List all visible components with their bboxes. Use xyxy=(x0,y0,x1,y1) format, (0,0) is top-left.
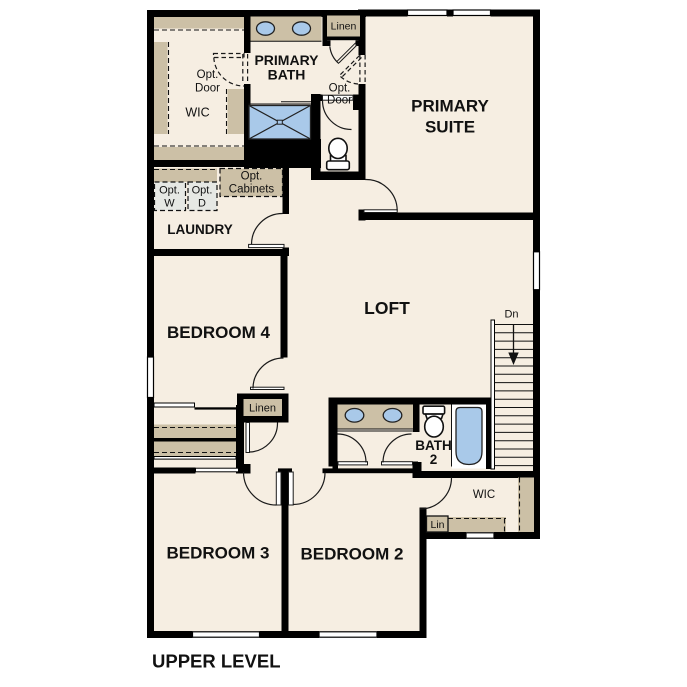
svg-text:Opt.: Opt. xyxy=(241,171,263,183)
svg-text:2: 2 xyxy=(430,452,438,467)
svg-text:Dn: Dn xyxy=(504,309,518,321)
svg-text:PRIMARY: PRIMARY xyxy=(411,97,489,116)
svg-text:Lin: Lin xyxy=(430,519,444,531)
svg-text:BEDROOM 4: BEDROOM 4 xyxy=(167,323,271,342)
svg-text:Opt.: Opt. xyxy=(329,83,351,95)
svg-text:LOFT: LOFT xyxy=(364,298,410,318)
svg-text:SUITE: SUITE xyxy=(425,118,475,137)
svg-text:Linen: Linen xyxy=(331,21,357,33)
svg-text:BATH: BATH xyxy=(415,438,452,453)
svg-text:BEDROOM 2: BEDROOM 2 xyxy=(301,545,404,564)
svg-text:Linen: Linen xyxy=(249,403,276,415)
svg-text:Cabinets: Cabinets xyxy=(229,184,275,196)
svg-text:Door: Door xyxy=(327,95,352,107)
svg-text:BEDROOM 3: BEDROOM 3 xyxy=(167,544,270,563)
svg-text:Opt.: Opt. xyxy=(192,185,213,197)
svg-text:WIC: WIC xyxy=(473,489,495,501)
svg-text:Opt.: Opt. xyxy=(197,69,219,81)
svg-text:WIC: WIC xyxy=(185,106,209,120)
svg-text:Door: Door xyxy=(195,83,220,95)
svg-text:UPPER LEVEL: UPPER LEVEL xyxy=(152,651,281,672)
svg-text:BATH: BATH xyxy=(268,67,306,83)
svg-text:LAUNDRY: LAUNDRY xyxy=(167,222,233,237)
svg-text:Opt.: Opt. xyxy=(159,185,180,197)
svg-text:D: D xyxy=(198,198,206,210)
svg-text:W: W xyxy=(164,198,175,210)
